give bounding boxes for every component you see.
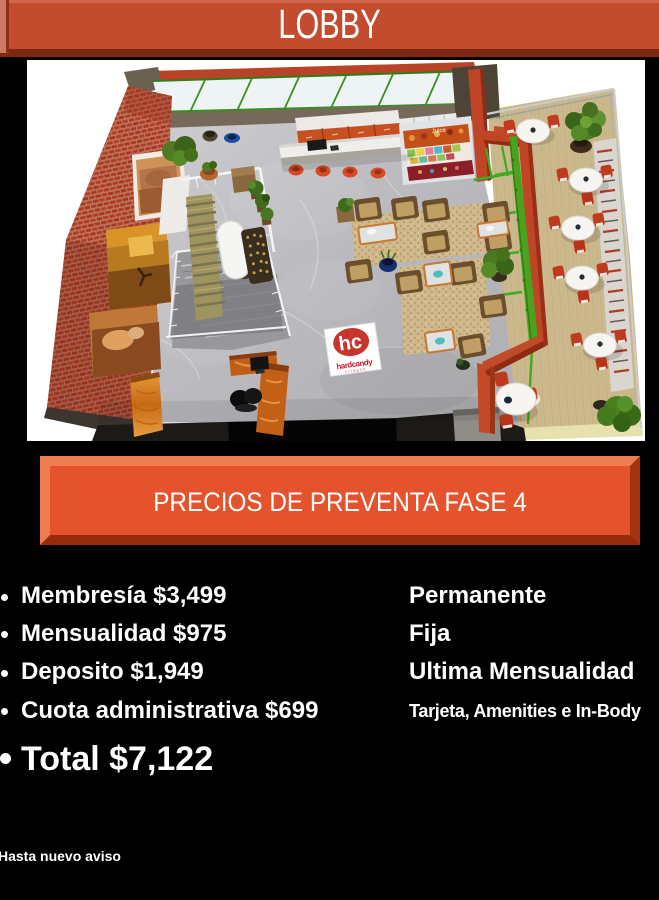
svg-text:hc: hc <box>337 331 363 356</box>
